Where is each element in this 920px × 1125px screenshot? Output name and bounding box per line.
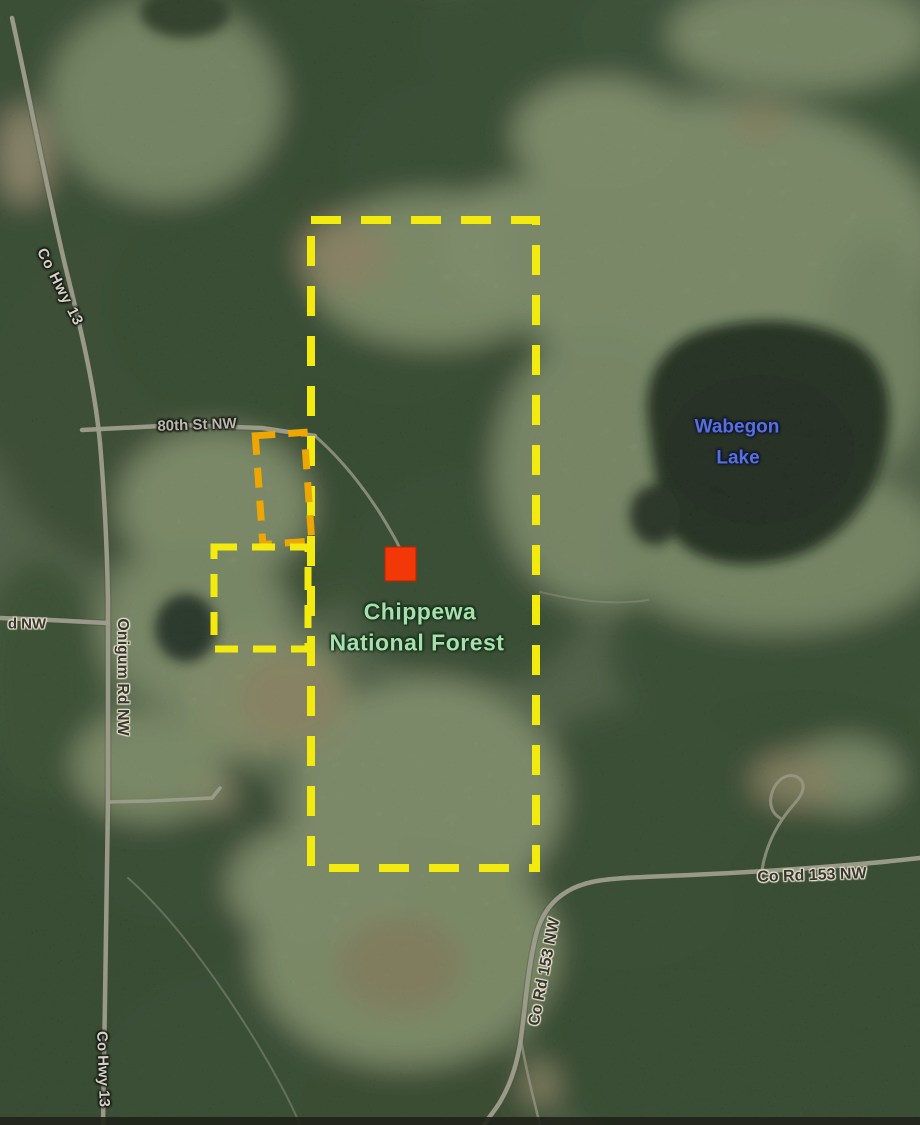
survey-area-large-rect — [311, 220, 536, 868]
forest-label-line1: Chippewa — [364, 601, 477, 624]
road-label-co-hwy-13-bottom: Co Hwy 13 — [94, 1031, 112, 1107]
road-label-rd-nw-partial: d NW — [8, 617, 46, 632]
lake-label-line2: Lake — [716, 449, 759, 468]
lake-label-line1: Wabegon — [695, 418, 780, 437]
red-square-site-marker[interactable] — [385, 547, 416, 581]
road-label-onigum-rd-nw: Onigum Rd NW — [114, 618, 130, 735]
road-label-80th-st-nw: 80th St NW — [157, 416, 237, 434]
annotation-overlay — [0, 0, 920, 1125]
survey-area-small-yellow-rect — [214, 547, 308, 649]
forest-label-line2: National Forest — [330, 632, 505, 655]
aerial-map-canvas[interactable]: Co Hwy 13 80th St NW d NW Onigum Rd NW C… — [0, 0, 920, 1125]
survey-area-orange-rect — [255, 432, 311, 544]
